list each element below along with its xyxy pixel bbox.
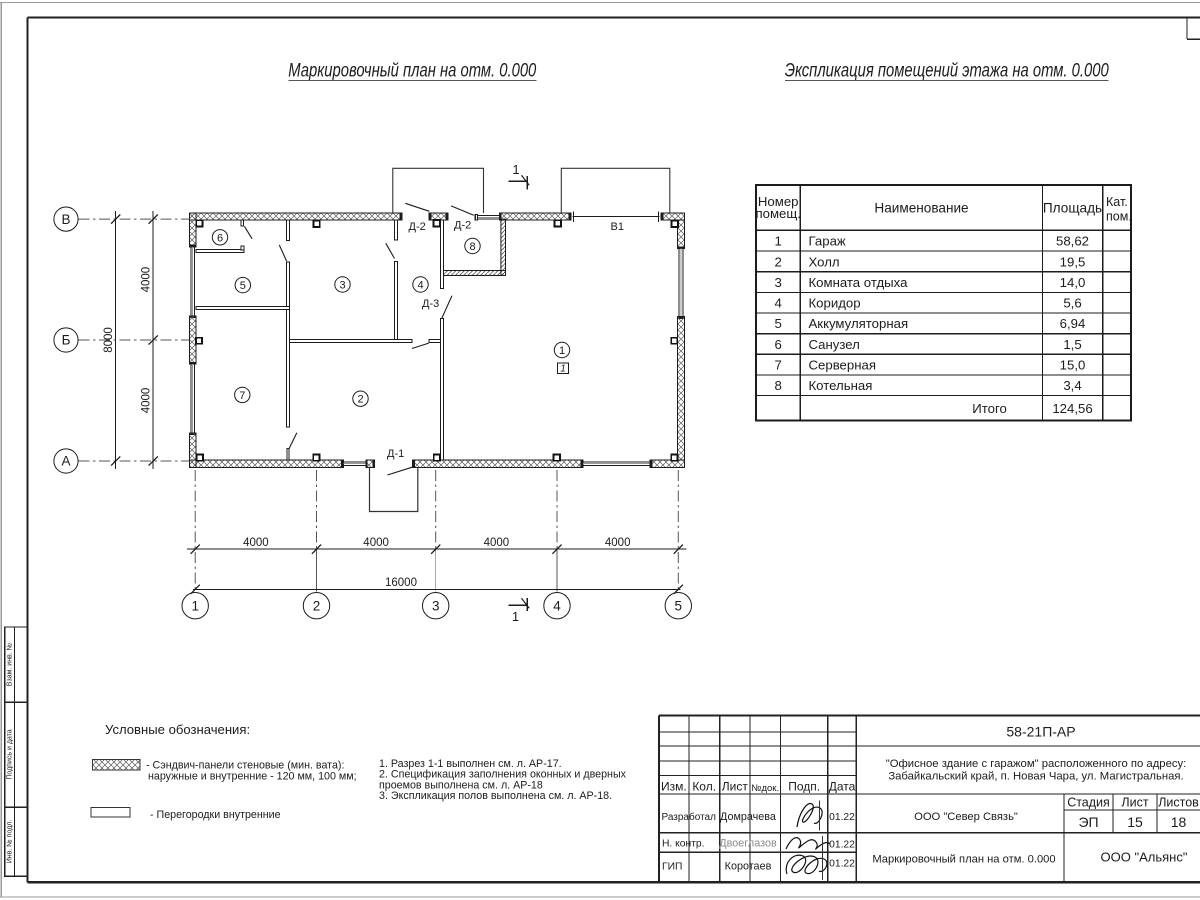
svg-text:В1: В1 (611, 221, 624, 233)
svg-text:Забайкальский край, п. Новая Ч: Забайкальский край, п. Новая Чара, ул. М… (888, 770, 1183, 782)
svg-text:3: 3 (339, 280, 345, 292)
svg-text:"Офисное здание с гаражом" рас: "Офисное здание с гаражом" расположенног… (886, 758, 1187, 770)
svg-text:Котельная: Котельная (809, 378, 873, 393)
svg-text:15: 15 (1127, 814, 1143, 830)
svg-text:Разработал: Разработал (662, 811, 717, 823)
svg-text:Дата: Дата (829, 779, 856, 793)
svg-text:Взам. инв. №: Взам. инв. № (6, 643, 13, 686)
svg-text:Стадия: Стадия (1067, 796, 1110, 810)
svg-text:Кат.: Кат. (1106, 195, 1128, 209)
svg-text:19,5: 19,5 (1060, 254, 1086, 269)
svg-text:16000: 16000 (385, 577, 417, 589)
svg-text:Лист: Лист (722, 779, 749, 793)
svg-text:3,4: 3,4 (1063, 378, 1081, 393)
svg-text:5,6: 5,6 (1063, 296, 1081, 311)
svg-text:Комната отдыха: Комната отдыха (809, 275, 909, 290)
svg-text:Д-3: Д-3 (422, 298, 439, 310)
svg-text:7: 7 (775, 358, 782, 373)
svg-text:8: 8 (469, 241, 475, 253)
svg-text:7: 7 (239, 390, 245, 402)
svg-text:58-21П-АР: 58-21П-АР (1006, 724, 1075, 740)
svg-text:5: 5 (775, 316, 782, 331)
svg-text:Н. контр.: Н. контр. (662, 839, 705, 850)
svg-text:1: 1 (559, 345, 565, 357)
svg-text:3: 3 (432, 598, 440, 613)
svg-text:4000: 4000 (363, 537, 389, 549)
svg-text:1: 1 (512, 609, 519, 624)
svg-text:4: 4 (417, 280, 423, 292)
svg-text:124,56: 124,56 (1052, 401, 1092, 416)
svg-text:5: 5 (240, 280, 246, 292)
svg-text:Подп.: Подп. (788, 779, 820, 793)
svg-text:1: 1 (191, 598, 199, 613)
svg-text:№док.: №док. (751, 783, 779, 794)
svg-text:Домрачева: Домрачева (720, 811, 776, 823)
svg-text:В: В (61, 212, 70, 227)
svg-text:01.22: 01.22 (829, 859, 855, 870)
svg-text:Лист: Лист (1121, 796, 1148, 810)
svg-text:Экспликация помещений этажа на: Экспликация помещений этажа на отм. 0.00… (785, 61, 1109, 82)
svg-text:ООО "Альянс": ООО "Альянс" (1101, 849, 1188, 864)
svg-text:Маркировочный план на отм. 0.0: Маркировочный план на отм. 0.000 (872, 854, 1055, 866)
svg-text:2: 2 (357, 394, 363, 406)
svg-text:1,5: 1,5 (1063, 337, 1081, 352)
svg-text:Изм.: Изм. (661, 779, 687, 793)
svg-text:6: 6 (775, 337, 782, 352)
svg-text:Маркировочный план на отм. 0.0: Маркировочный план на отм. 0.000 (288, 61, 536, 82)
svg-text:Д-2: Д-2 (454, 220, 471, 232)
svg-text:3: 3 (775, 275, 782, 290)
svg-text:1: 1 (775, 234, 782, 249)
svg-text:18: 18 (1171, 814, 1187, 830)
svg-text:4: 4 (775, 296, 782, 311)
svg-text:2: 2 (313, 598, 321, 613)
svg-text:8: 8 (775, 378, 782, 393)
svg-text:Условные обозначения:: Условные обозначения: (105, 722, 250, 737)
svg-text:наружные и внутренние - 120 мм: наружные и внутренние - 120 мм, 100 мм; (148, 770, 357, 782)
svg-text:6,94: 6,94 (1060, 316, 1086, 331)
svg-text:2: 2 (775, 254, 782, 269)
svg-text:Наименование: Наименование (874, 201, 968, 216)
svg-text:Инв. № подл.: Инв. № подл. (6, 820, 13, 864)
svg-text:4000: 4000 (140, 267, 152, 293)
svg-text:Итого: Итого (972, 401, 1007, 416)
svg-text:1: 1 (512, 162, 519, 177)
svg-text:01.22: 01.22 (829, 812, 855, 823)
svg-text:5: 5 (675, 598, 683, 613)
svg-text:1: 1 (560, 364, 566, 375)
svg-text:Подпись и дата: Подпись и дата (6, 729, 13, 779)
svg-text:Серверная: Серверная (809, 358, 876, 373)
svg-text:ГИП: ГИП (662, 862, 682, 873)
svg-text:Аккумуляторная: Аккумуляторная (809, 316, 909, 331)
svg-text:6: 6 (217, 232, 223, 244)
svg-text:01.22: 01.22 (829, 840, 855, 851)
svg-text:Коротаев: Коротаев (725, 861, 772, 873)
svg-text:4000: 4000 (605, 537, 631, 549)
svg-text:пом.: пом. (1106, 210, 1132, 224)
svg-text:4000: 4000 (484, 537, 510, 549)
svg-text:Двоеглазов: Двоеглазов (719, 838, 777, 850)
svg-text:Гараж: Гараж (809, 234, 846, 249)
svg-text:Площадь: Площадь (1043, 201, 1102, 216)
svg-text:4000: 4000 (243, 537, 269, 549)
svg-text:ООО "Север Связь": ООО "Север Связь" (914, 811, 1018, 823)
svg-text:Листов: Листов (1158, 796, 1199, 810)
svg-text:ЭП: ЭП (1078, 814, 1098, 830)
svg-text:Д-2: Д-2 (409, 221, 426, 233)
svg-text:4000: 4000 (140, 388, 152, 414)
svg-text:15,0: 15,0 (1060, 358, 1086, 373)
svg-text:Д-1: Д-1 (387, 448, 404, 460)
svg-text:- Перегородки внутренние: - Перегородки внутренние (150, 809, 281, 821)
svg-text:Коридор: Коридор (809, 296, 861, 311)
svg-text:Холл: Холл (809, 254, 840, 269)
svg-text:58,62: 58,62 (1056, 234, 1089, 249)
svg-text:Б: Б (62, 333, 71, 348)
svg-text:Санузел: Санузел (809, 337, 860, 352)
svg-text:8000: 8000 (103, 327, 115, 353)
svg-text:14,0: 14,0 (1060, 275, 1086, 290)
svg-text:3. Экспликация полов выполнена: 3. Экспликация полов выполнена см. л. АР… (379, 790, 612, 802)
svg-text:А: А (61, 454, 70, 469)
svg-text:помещ.: помещ. (756, 206, 801, 221)
svg-text:4: 4 (553, 598, 561, 613)
svg-text:Кол.: Кол. (692, 779, 716, 793)
